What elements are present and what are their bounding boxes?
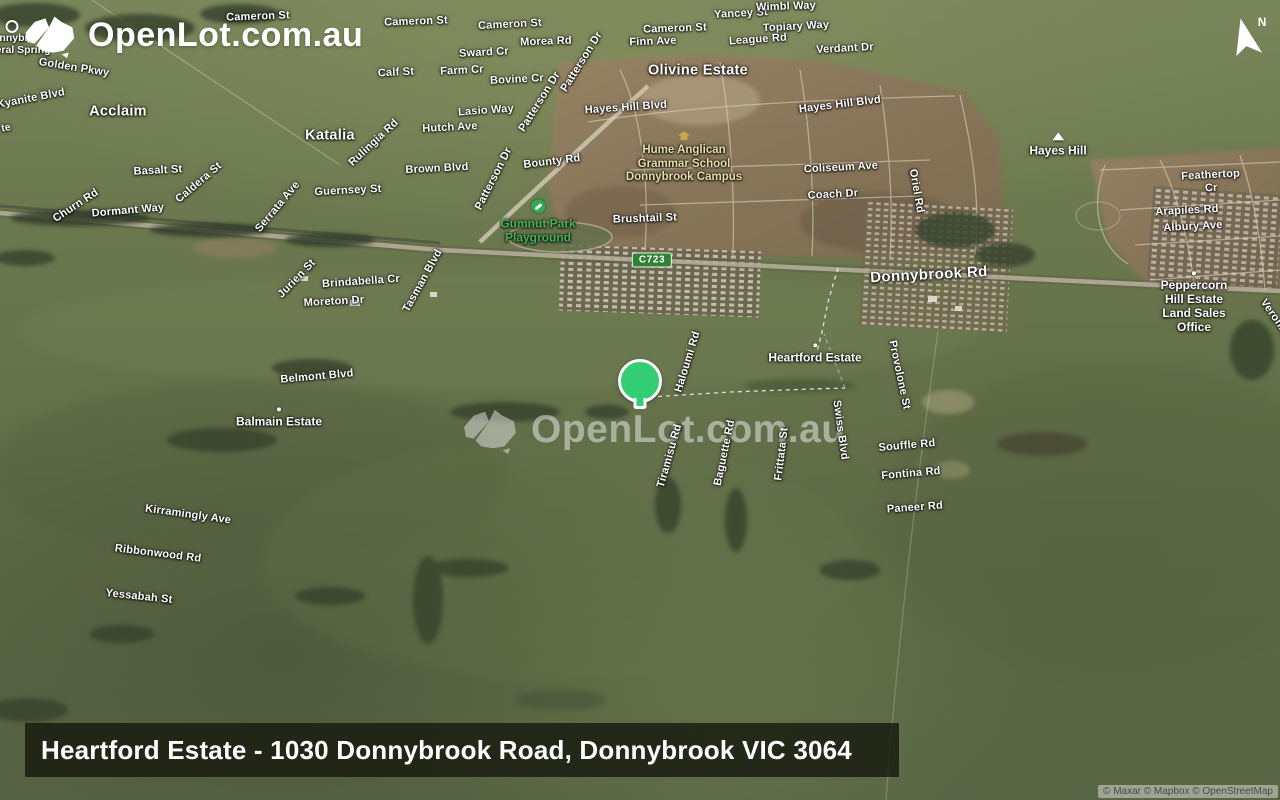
australia-logo-icon [22, 13, 76, 58]
openlot-logo: OpenLot.com.au [22, 13, 363, 58]
route-shield-c723: C723 [632, 253, 672, 268]
address-title-text: Heartford Estate - 1030 Donnybrook Road,… [41, 735, 852, 766]
compass-letter: N [1258, 15, 1267, 29]
field-variation [0, 270, 1280, 680]
address-title-bar: Heartford Estate - 1030 Donnybrook Road,… [25, 723, 899, 777]
map-attribution[interactable]: © Maxar © Mapbox © OpenStreetMap [1098, 785, 1278, 798]
map-canvas[interactable]: OpenLot.com.au Cameron StCameron StCamer… [0, 0, 1280, 800]
north-arrow-icon: N [1222, 12, 1274, 64]
location-pin-marker[interactable] [618, 359, 662, 403]
logo-text: OpenLot.com.au [88, 16, 363, 55]
compass-north-button[interactable]: N [1222, 12, 1274, 64]
